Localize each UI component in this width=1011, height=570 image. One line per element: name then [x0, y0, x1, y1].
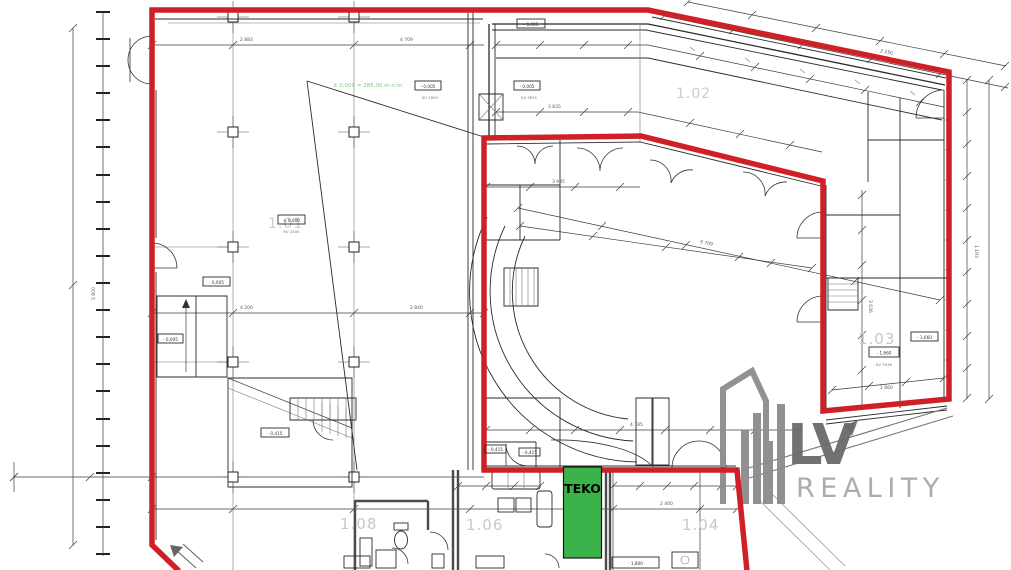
sink [681, 556, 689, 564]
chain-slant-b-ticks [516, 222, 816, 272]
room-label-108: 1.08 [340, 515, 377, 533]
fixture-4 [476, 556, 504, 568]
teko-label: TEKO [564, 481, 601, 496]
elev-text-3: ± 0,000 [283, 218, 300, 223]
elev-text-8: - 1,660 [917, 335, 932, 340]
door-wide-arc [551, 440, 653, 467]
dim-text-6: 4 785 [630, 422, 643, 428]
fixture-3 [432, 554, 444, 568]
door-103-upper [797, 212, 823, 238]
door-mid-pair-1 [517, 146, 553, 164]
watermark-brand: LV [787, 413, 856, 478]
elev-text-2: - 0,415 [268, 431, 283, 436]
column-crosshairs [217, 1, 370, 493]
table-1 [498, 498, 514, 512]
chain-slant-a [518, 208, 940, 300]
wall-103-interior [826, 185, 947, 408]
door-mid-pair-2 [577, 148, 623, 171]
door-entry-left-double [128, 36, 152, 84]
door-lowerleft [506, 444, 528, 466]
curve-middle [490, 226, 633, 441]
elev-text-10: - 0,415 [522, 450, 537, 455]
stairs-mid-outline [504, 268, 538, 306]
chain-102-a [496, 45, 944, 107]
dim-text-0: 2 883 [240, 37, 253, 43]
wall-midleft-rooms [486, 140, 560, 240]
fixture-2 [376, 550, 396, 568]
elev-text-7: - 1,660 [877, 351, 892, 356]
elev-text-6: - 0,005 [421, 84, 436, 89]
door-bottom-edge-2 [545, 554, 559, 568]
grid-vertical-lines [233, 10, 354, 570]
dim-text-8: 3 036 [867, 300, 873, 313]
curve-inner [512, 236, 628, 419]
curved-walls [470, 217, 637, 462]
wall-gray-106-left [453, 470, 458, 570]
dim-text-3: 2 840 [410, 305, 423, 311]
room-label-104: 1.04 [682, 516, 719, 534]
door-103-lower [797, 296, 823, 322]
door-mid-pair-4 [743, 172, 787, 196]
dim-text-1: 4 709 [400, 37, 413, 43]
table-2 [516, 498, 531, 512]
floor-plan: LV REALITY TEKO 1.01 1.02 1.03 1.04 1.06… [0, 0, 1011, 570]
door-mid-pair-3 [650, 160, 693, 183]
door-108 [430, 532, 448, 550]
wall-midroom-top [486, 142, 821, 186]
sofa-cushions [508, 472, 524, 489]
wall-gray-104-left [606, 470, 610, 570]
dim-text-13: 1 660 [880, 385, 893, 391]
bottom-right-slants [757, 494, 845, 570]
green-datum-note: ± 0,000 = 285,00 m n.m. [333, 83, 404, 89]
chain-topright-2 [664, 16, 1008, 88]
hall-diagonal-a [307, 81, 484, 137]
elev-text-9: - 0,415 [488, 447, 503, 452]
chain-102-b [496, 112, 822, 152]
elev-kv-6: KV 2800 [422, 95, 439, 100]
door-bottom-pair [672, 441, 726, 468]
hall-diagonal-b [307, 81, 357, 470]
wall-102-right-interior [868, 92, 944, 186]
dim-text-2: 4 200 [240, 305, 253, 311]
toilet-bowl [395, 531, 408, 549]
duct-rect-pair [636, 398, 669, 465]
teko-unit: TEKO [564, 467, 602, 558]
right-ruler-2 [985, 76, 993, 403]
watermark-suffix: REALITY [796, 473, 945, 504]
elev-text-5: - 0,005 [520, 84, 535, 89]
subroom-a-arrowhead [182, 299, 190, 308]
floor-plan-drawing: LV REALITY TEKO 1.01 1.02 1.03 1.04 1.06… [0, 0, 1011, 570]
dim-text-5: 6 709 [700, 239, 714, 248]
stairs-103-treads [828, 284, 858, 302]
watermark: LV REALITY [723, 371, 945, 504]
elev-kv-3: KV 2400 [284, 229, 301, 234]
dim-text-4: 3 985 [552, 179, 565, 185]
chain-topright-1-ticks [684, 0, 1009, 70]
sofa [492, 472, 540, 489]
elev-text-1: - 0,005 [163, 337, 178, 342]
shaft-cross [479, 94, 503, 120]
wall-lowerleft-rooms [486, 398, 560, 470]
room-label-103: 1.03 [858, 330, 895, 348]
room-label-102: 1.02 [676, 86, 711, 102]
dim-text-12: 3 835 [548, 104, 561, 110]
dim-text-11: 2 400 [660, 501, 673, 507]
dim-text-10: 5 800 [91, 287, 97, 300]
elev-text-0: - 0,005 [209, 280, 224, 285]
elev-text-11: - 1,800 [628, 561, 643, 566]
room-label-106: 1.06 [466, 516, 503, 534]
wall-gray-108 [355, 500, 428, 570]
elev-kv-7: KV 3036 [876, 362, 893, 367]
fixture-5 [672, 552, 698, 568]
toilet-tank [394, 523, 408, 530]
wall-topright-face [652, 17, 946, 78]
grid-partial-horizontals [152, 247, 233, 362]
elev-kv-5: KV 3835 [521, 95, 538, 100]
wall-double-470 [468, 10, 473, 470]
elev-text-4: - 0,005 [524, 22, 539, 27]
ramp-room-outline [228, 378, 352, 487]
wall-102-interior [496, 58, 942, 120]
dim-text-9: 1 193 [973, 245, 979, 258]
